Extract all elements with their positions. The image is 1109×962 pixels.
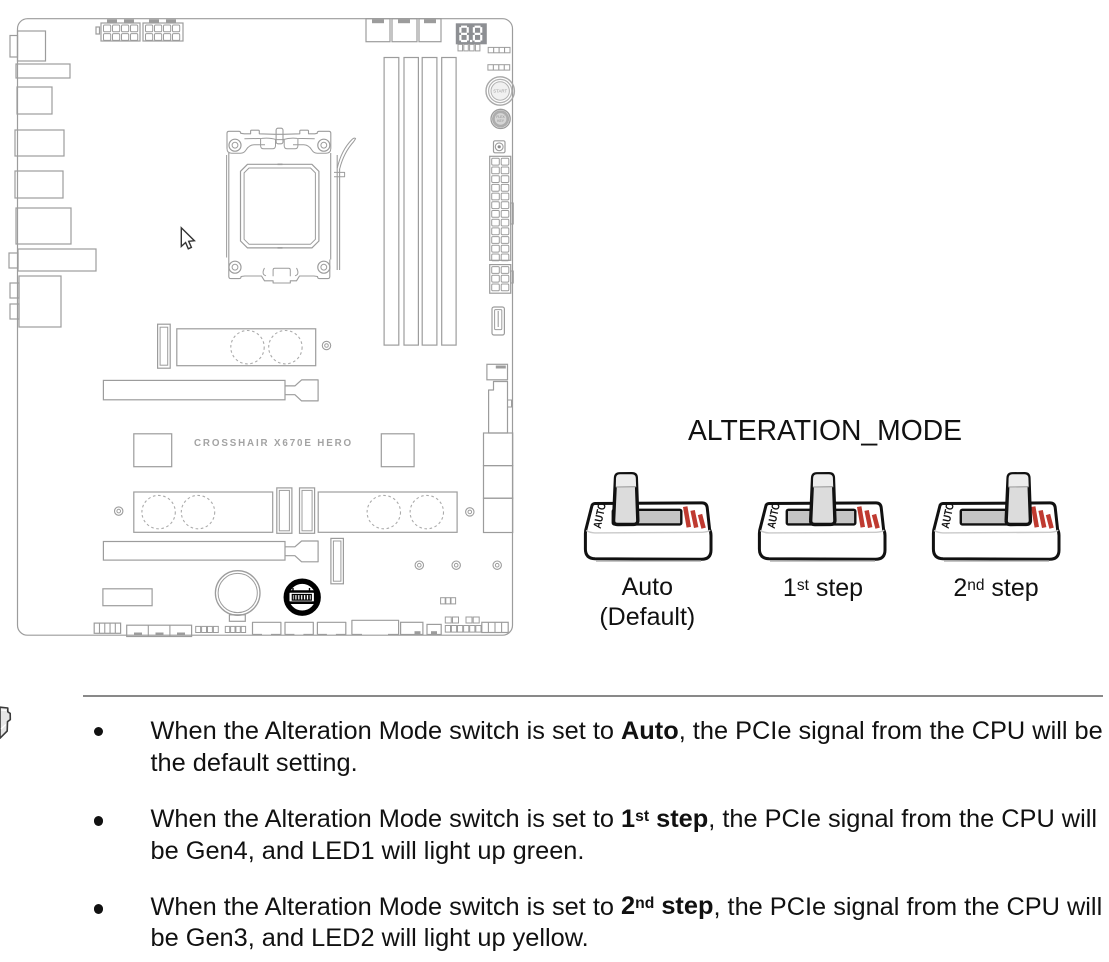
svg-text:KEY: KEY <box>497 119 505 123</box>
svg-text:CROSSHAIR X670E HERO: CROSSHAIR X670E HERO <box>194 438 353 449</box>
svg-text:START: START <box>493 89 507 94</box>
